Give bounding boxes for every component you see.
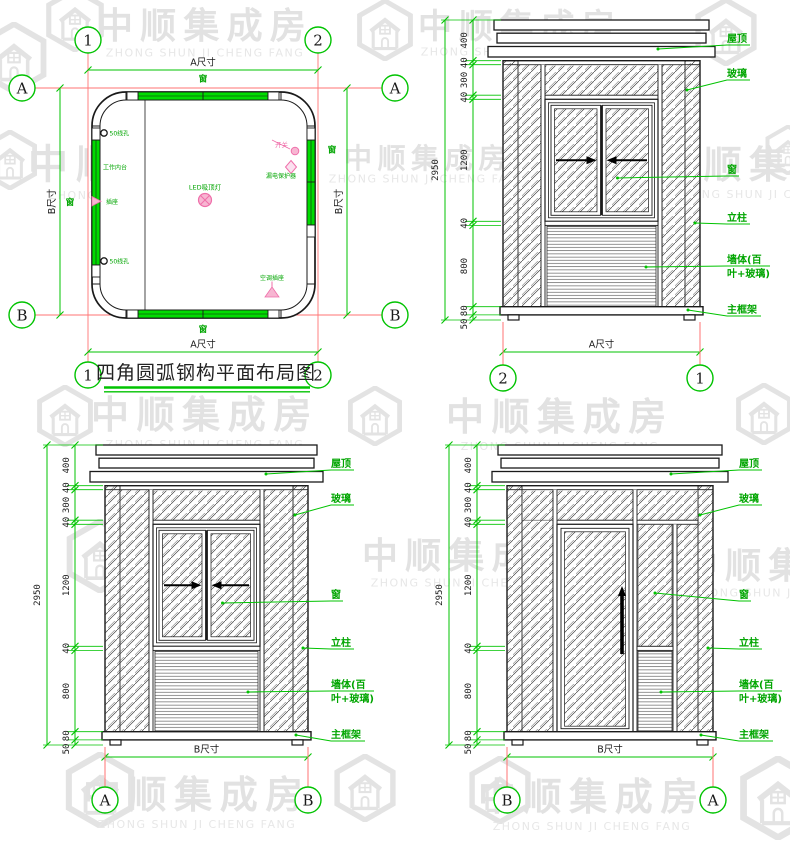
callout-main-frame: 主框架: [727, 303, 757, 316]
grid-bubble-label: B: [389, 307, 400, 325]
dim-label: 400: [464, 457, 474, 473]
roof-slab: [96, 445, 317, 455]
window-header: [545, 95, 658, 99]
dim-label: 80: [460, 305, 470, 316]
callout-window: 窗: [739, 588, 749, 601]
dim-label: 800: [460, 258, 470, 274]
dim-label: 50: [62, 744, 72, 755]
grid-bubble-label: 2: [498, 370, 508, 388]
brand-hexagon-icon: [350, 388, 399, 444]
dim-label: 40: [460, 218, 470, 229]
window-mullion: [127, 310, 138, 318]
callout-wall: 墙体(百: [739, 678, 774, 691]
leader-dot: [221, 602, 224, 605]
dim-width-label: B尺寸: [597, 744, 623, 756]
cad-drawing: 中顺集成房ZHONG SHUN JI CHENG FANG中顺集成房ZHONG …: [0, 0, 790, 852]
roof-slab: [497, 33, 706, 43]
elevation-door-side: 400403004012004080080502950B尺寸BA屋顶玻璃窗立柱墙…: [435, 442, 782, 814]
led-light-label: LED吸顶灯: [189, 183, 222, 192]
dim-label: 50: [460, 319, 470, 330]
roof-slab: [498, 445, 722, 455]
callout-main-frame: 主框架: [739, 728, 769, 741]
plan-view: A尺寸A尺寸B尺寸B尺寸窗窗窗窗50线孔50线孔工作内台插座LED吸顶灯开关漏电…: [9, 27, 408, 392]
dim-label: 40: [460, 57, 470, 68]
callout-glass: 玻璃: [727, 67, 747, 80]
grid-bubble-label: 1: [83, 32, 93, 50]
drawing-canvas: 中顺集成房ZHONG SHUN JI CHENG FANG中顺集成房ZHONG …: [0, 0, 790, 852]
window-mullion: [92, 128, 100, 140]
dim-label: 40: [464, 517, 474, 528]
dim-label: 40: [464, 643, 474, 654]
brand-hexagon-icon: [744, 759, 790, 838]
dim-b-right-label: B尺寸: [333, 188, 345, 214]
side-glass: [522, 520, 553, 732]
foot: [508, 315, 519, 320]
roof-slab: [501, 458, 719, 468]
wire-hole-label: 50线孔: [110, 130, 130, 138]
window-mullion: [268, 310, 279, 318]
callout-wall: 墙体(百: [331, 678, 366, 691]
grid-bubble-label: 1: [83, 367, 93, 385]
base-beam: [504, 732, 716, 740]
grid-bubble-label: A: [707, 792, 719, 810]
leader-dot: [707, 647, 710, 650]
callout-wall-line2: 叶+玻璃): [739, 692, 782, 705]
leader-dot: [694, 222, 697, 225]
dim-label: 40: [62, 482, 72, 493]
grid-bubble-label: A: [16, 80, 28, 98]
wire-hole-label: 50线孔: [110, 258, 130, 266]
grid-bubble-label: A: [99, 792, 111, 810]
dim-total-label: 2950: [435, 584, 445, 606]
plan-window-label: 窗: [66, 197, 75, 208]
corner-post: [698, 486, 713, 732]
leader-dot: [265, 473, 268, 476]
callout-main-frame: 主框架: [331, 728, 361, 741]
door-handle: [620, 596, 624, 654]
dim-total-label: 2950: [431, 159, 441, 181]
roof-slab: [99, 458, 314, 468]
side-glass: [518, 65, 541, 307]
roof-slab: [494, 20, 709, 30]
side-glass: [264, 490, 293, 732]
dim-label: 40: [62, 643, 72, 654]
brand-hexagon-icon: [360, 1, 411, 59]
leader-dot: [657, 48, 660, 51]
corner-post: [105, 486, 120, 732]
grid-bubble-label: 1: [695, 370, 705, 388]
side-glass: [120, 490, 149, 732]
louvre-band: [545, 221, 658, 225]
corner-post: [293, 486, 308, 732]
watermark-cn: 中顺集成房: [446, 395, 674, 439]
corner-post: [685, 61, 700, 307]
dim-label: 400: [460, 32, 470, 48]
leader-dot: [670, 473, 673, 476]
transom-glass: [153, 491, 260, 521]
window-mullion: [307, 128, 315, 140]
callout-column: 立柱: [727, 211, 747, 224]
leader-dot: [699, 514, 702, 517]
door-glass: [565, 532, 626, 726]
grid-bubble-label: A: [389, 80, 401, 98]
leader-dot: [247, 691, 250, 694]
leader-dot: [654, 592, 657, 595]
callout-roof: 屋顶: [331, 458, 351, 470]
leader-dot: [302, 647, 305, 650]
window-mullion: [92, 265, 100, 277]
callout-column: 立柱: [739, 636, 759, 649]
dim-label: 80: [62, 730, 72, 741]
dim-label: 1200: [464, 574, 474, 596]
leader-dot: [686, 89, 689, 92]
dim-width-label: A尺寸: [589, 339, 615, 351]
switch-label: 开关: [275, 140, 289, 149]
callout-wall-line2: 叶+玻璃): [331, 692, 374, 705]
elevation-front: 400403004012004080080502950A尺寸21屋顶玻璃窗立柱墙…: [431, 17, 770, 392]
switch-symbol: [291, 147, 299, 155]
watermark-cn: 中顺集成房: [91, 393, 319, 437]
right-glass: [677, 524, 698, 731]
callout-glass: 玻璃: [739, 492, 759, 505]
foot: [512, 740, 523, 745]
callout-roof: 屋顶: [727, 33, 747, 45]
callout-wall-line2: 叶+玻璃): [727, 267, 770, 280]
watermark-en: ZHONG SHUN JI CHENG FANG: [493, 820, 691, 833]
corner-post: [507, 486, 522, 732]
leader-dot: [687, 309, 690, 312]
dim-b-left-label: B尺寸: [46, 188, 58, 214]
transom-glass: [523, 491, 697, 521]
elevation-side: 400403004012004080080502950B尺寸AB屋顶玻璃窗立柱墙…: [33, 442, 374, 814]
dim-label: 300: [62, 497, 72, 513]
worktop-label: 工作内台: [103, 164, 127, 172]
dim-label: 400: [62, 457, 72, 473]
wire-hole-symbol: [101, 130, 107, 136]
dim-label: 40: [62, 517, 72, 528]
wire-hole-symbol: [101, 258, 107, 264]
base-beam: [500, 307, 703, 315]
louvre-band: [637, 646, 673, 650]
brand-hexagon-icon: [337, 756, 393, 820]
dim-label: 40: [460, 92, 470, 103]
callout-wall: 墙体(百: [727, 253, 762, 266]
grid-bubble-label: B: [302, 792, 313, 810]
side-glass: [662, 65, 685, 307]
dim-label: 300: [464, 497, 474, 513]
leader-dot: [645, 266, 648, 269]
plan-window-label: 窗: [199, 324, 208, 335]
dim-label: 1200: [460, 149, 470, 171]
foot: [684, 315, 695, 320]
callout-window: 窗: [727, 163, 737, 176]
door-header: [557, 520, 698, 524]
ac-socket-label: 空调插座: [260, 274, 284, 282]
grid-bubble-label: B: [501, 792, 512, 810]
dim-label: 40: [464, 482, 474, 493]
dim-label: 800: [464, 683, 474, 699]
callout-roof: 屋顶: [739, 458, 759, 470]
dim-width-label: B尺寸: [194, 744, 220, 756]
louvre-wall: [155, 651, 258, 731]
louvre-wall: [547, 226, 656, 306]
dim-label: 300: [460, 72, 470, 88]
corner-post: [503, 61, 518, 307]
plan-window-label: 窗: [199, 74, 208, 85]
leader-dot: [660, 691, 663, 694]
grid-bubble-label: B: [16, 307, 27, 325]
leader-dot: [294, 514, 297, 517]
mullion-mask: [260, 490, 264, 732]
callout-column: 立柱: [331, 636, 351, 649]
watermark-en: ZHONG SHUN JI CHENG FANG: [329, 173, 527, 186]
leader-dot: [295, 734, 298, 737]
window-header: [153, 520, 260, 524]
louvre-band: [153, 646, 260, 650]
foot: [110, 740, 121, 745]
watermark-cn: 中顺集成房: [344, 142, 512, 175]
window-mullion: [268, 92, 279, 100]
dim-total-label: 2950: [33, 584, 43, 606]
dim-label: 1200: [62, 574, 72, 596]
dim-a-top-label: A尺寸: [190, 57, 216, 69]
brand-hexagon-icon: [739, 385, 790, 443]
plan-window-label: 窗: [328, 145, 337, 156]
plan-title: 四角圆弧钢构平面布局图: [96, 362, 316, 384]
brand-hexagon-icon: [40, 387, 91, 445]
mullion-mask: [673, 524, 677, 731]
watermark-en: ZHONG SHUN JI CHENG FANG: [98, 818, 296, 831]
socket-label: 插座: [106, 198, 118, 206]
foot: [292, 740, 303, 745]
watermark-cn: 中顺集成房: [97, 6, 313, 47]
base-beam: [102, 732, 311, 740]
foot: [697, 740, 708, 745]
callout-glass: 玻璃: [331, 492, 351, 505]
callout-window: 窗: [331, 588, 341, 601]
mullion-mask: [149, 490, 153, 732]
dim-a-bottom-label: A尺寸: [190, 339, 216, 351]
dim-label: 800: [62, 683, 72, 699]
right-window-glass: [638, 524, 672, 646]
transom-glass: [545, 66, 658, 96]
grid-bubble-label: 2: [313, 32, 323, 50]
window-mullion: [307, 225, 315, 237]
leader-dot: [616, 177, 619, 180]
window-mullion: [127, 92, 138, 100]
dim-label: 50: [464, 744, 474, 755]
breaker-label: 漏电保护器: [266, 172, 296, 180]
leader-dot: [700, 734, 703, 737]
dim-label: 80: [464, 730, 474, 741]
